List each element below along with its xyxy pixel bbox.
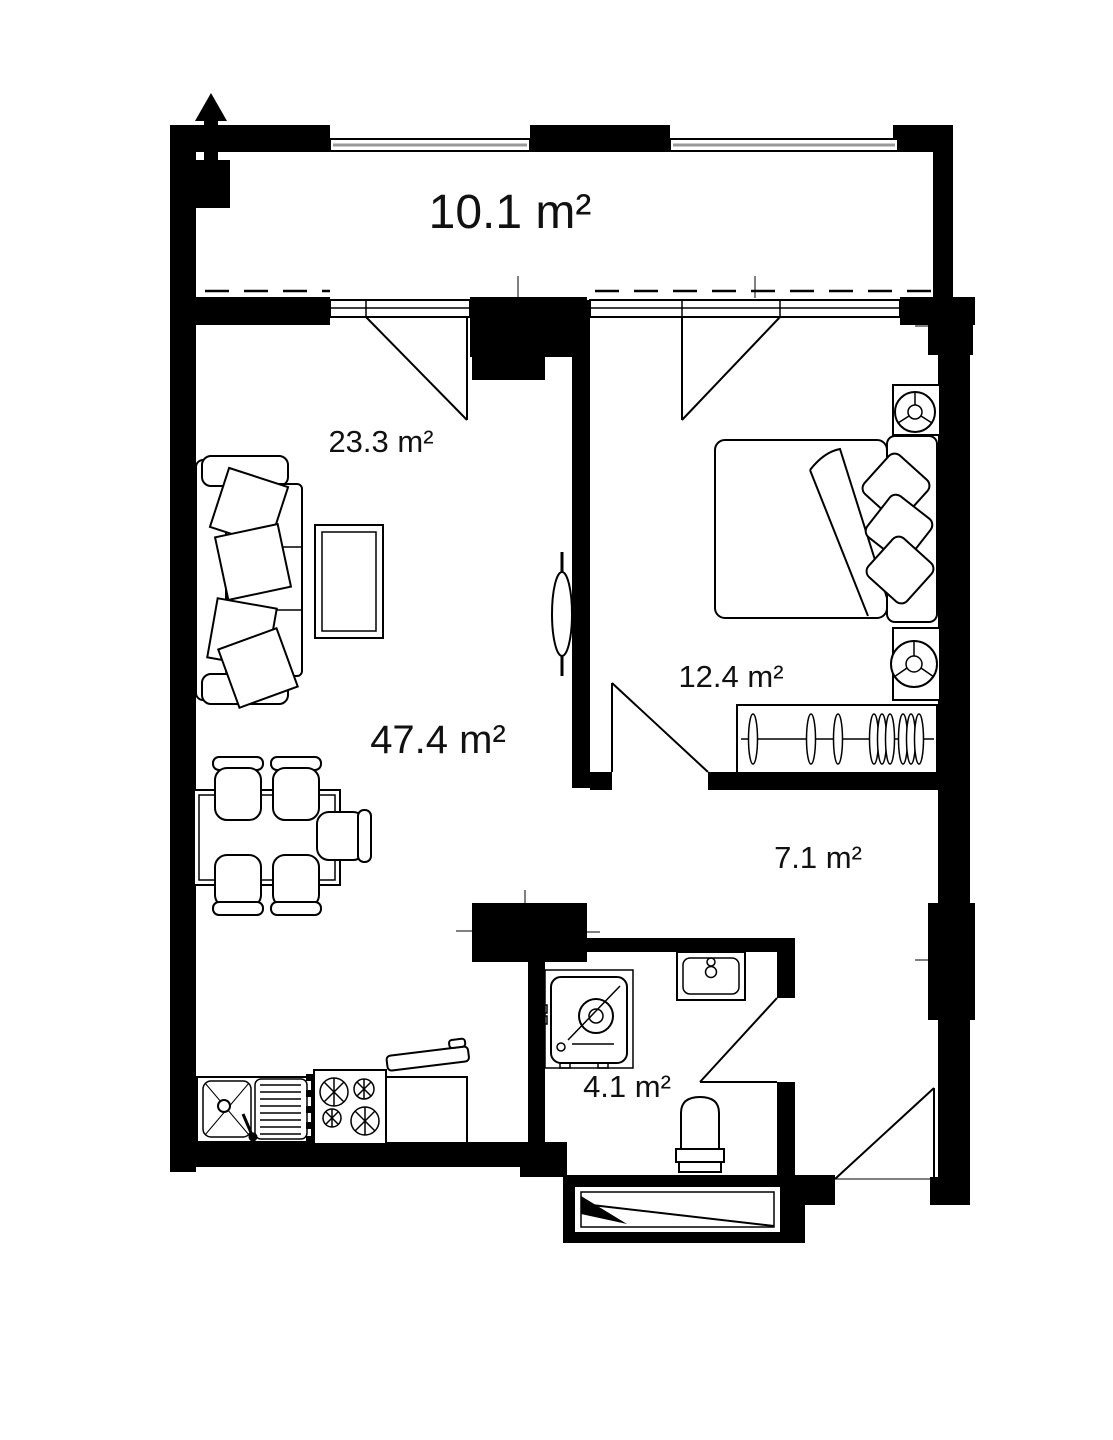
wall-bathroom-right-lower (777, 1082, 795, 1182)
wall-right-top-stub (928, 322, 973, 355)
wall-living-bedroom-divider (572, 300, 590, 788)
wall-bedroom-bottom-left (590, 772, 612, 790)
dining-chair-1 (213, 757, 263, 820)
coffee-table (315, 525, 383, 638)
sofa (196, 456, 302, 708)
tv-unit (552, 552, 572, 676)
wall-right (938, 297, 970, 1205)
wall-band-left (196, 297, 330, 325)
nightstand-top (893, 385, 940, 435)
bathroom-fixtures (535, 948, 745, 1172)
kitchen-counter-lid (386, 1038, 469, 1143)
washing-machine (535, 970, 633, 1068)
entrance-door (835, 1088, 934, 1179)
dining-chair-4 (271, 855, 321, 915)
wall-band-pillar (470, 297, 587, 357)
hallway-area-label: 7.1 m² (774, 840, 862, 875)
wall-shaft-block (472, 903, 587, 962)
wall-left (170, 125, 196, 1172)
wall-bathroom-left (528, 962, 545, 1147)
dining-chair-2 (271, 757, 321, 820)
lid-handle (449, 1038, 466, 1048)
duct-interior (575, 1187, 780, 1232)
bathroom-door (700, 998, 777, 1082)
sink-drain (218, 1100, 230, 1112)
wall-top-right (893, 125, 953, 152)
total-area-label: 47.4 m² (370, 718, 506, 762)
wall-chimney-block (196, 160, 230, 208)
wall-bedroom-bottom-right (708, 772, 940, 790)
bathroom-sink (677, 948, 745, 1000)
wall-bottom-step (520, 1142, 567, 1177)
dining-chair-5 (317, 810, 371, 862)
tv-body (552, 572, 572, 656)
bathroom-area-label: 4.1 m² (583, 1069, 671, 1104)
living-zone-area-label: 23.3 m² (328, 424, 433, 459)
floor-plan: 10.1 m² 23.3 m² 47.4 m² 12.4 m² 7.1 m² 4… (0, 0, 1113, 1440)
coffee-table-outer (315, 525, 383, 638)
wall-entry-jamb (805, 1175, 835, 1205)
wall-right-pier (928, 903, 975, 1020)
counter-module (386, 1077, 467, 1143)
floor-plan-drawing: 10.1 m² 23.3 m² 47.4 m² 12.4 m² 7.1 m² 4… (0, 0, 1113, 1440)
wardrobe (737, 705, 937, 773)
bedroom-furniture (715, 385, 940, 773)
toilet-seat-hinge (676, 1149, 724, 1162)
nightstand-bottom (891, 628, 940, 700)
wall-entry-right (930, 1177, 970, 1205)
toilet (676, 1097, 724, 1172)
bedroom-door (612, 683, 708, 772)
wall-top-middle (530, 125, 670, 152)
open-lid (386, 1046, 469, 1071)
wall-band-pillar-stub (472, 357, 545, 380)
wall-bathroom-right-upper (777, 938, 795, 998)
kitchen-stove (306, 1070, 386, 1144)
balcony-door-living (366, 317, 467, 420)
arrow-shaft (204, 115, 218, 167)
dining-chair-3 (213, 855, 263, 915)
toilet-tank (679, 1162, 721, 1172)
toilet-bowl (681, 1097, 719, 1150)
kitchen-sink-unit (197, 1077, 312, 1142)
wall-balcony-right (933, 150, 953, 302)
dining-set (194, 757, 371, 915)
sofa-pillow-2 (215, 524, 291, 600)
double-bed (715, 436, 937, 622)
bedroom-area-label: 12.4 m² (678, 659, 783, 694)
duct-shaft (575, 1187, 780, 1232)
bed-mattress (715, 440, 887, 618)
balcony-area-label: 10.1 m² (429, 186, 592, 239)
kitchen (197, 1038, 469, 1144)
washer-drum (579, 999, 613, 1033)
balcony-door-bedroom (682, 317, 780, 420)
wall-bottom (170, 1142, 530, 1167)
